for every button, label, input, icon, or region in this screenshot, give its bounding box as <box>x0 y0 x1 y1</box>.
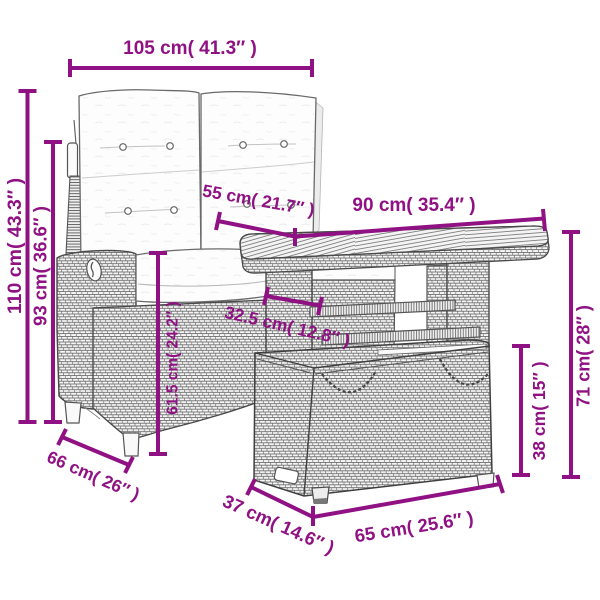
svg-text:38 cm( 15″ ): 38 cm( 15″ ) <box>529 362 549 461</box>
svg-text:61.5 cm( 24.2″ ): 61.5 cm( 24.2″ ) <box>164 301 181 414</box>
svg-text:110 cm( 43.3″ ): 110 cm( 43.3″ ) <box>4 178 26 314</box>
svg-text:71 cm( 28″ ): 71 cm( 28″ ) <box>573 305 593 407</box>
svg-text:90 cm( 35.4″ ): 90 cm( 35.4″ ) <box>352 195 475 216</box>
svg-text:105 cm( 41.3″ ): 105 cm( 41.3″ ) <box>123 38 257 59</box>
svg-text:93 cm( 36.6″ ): 93 cm( 36.6″ ) <box>29 206 50 326</box>
